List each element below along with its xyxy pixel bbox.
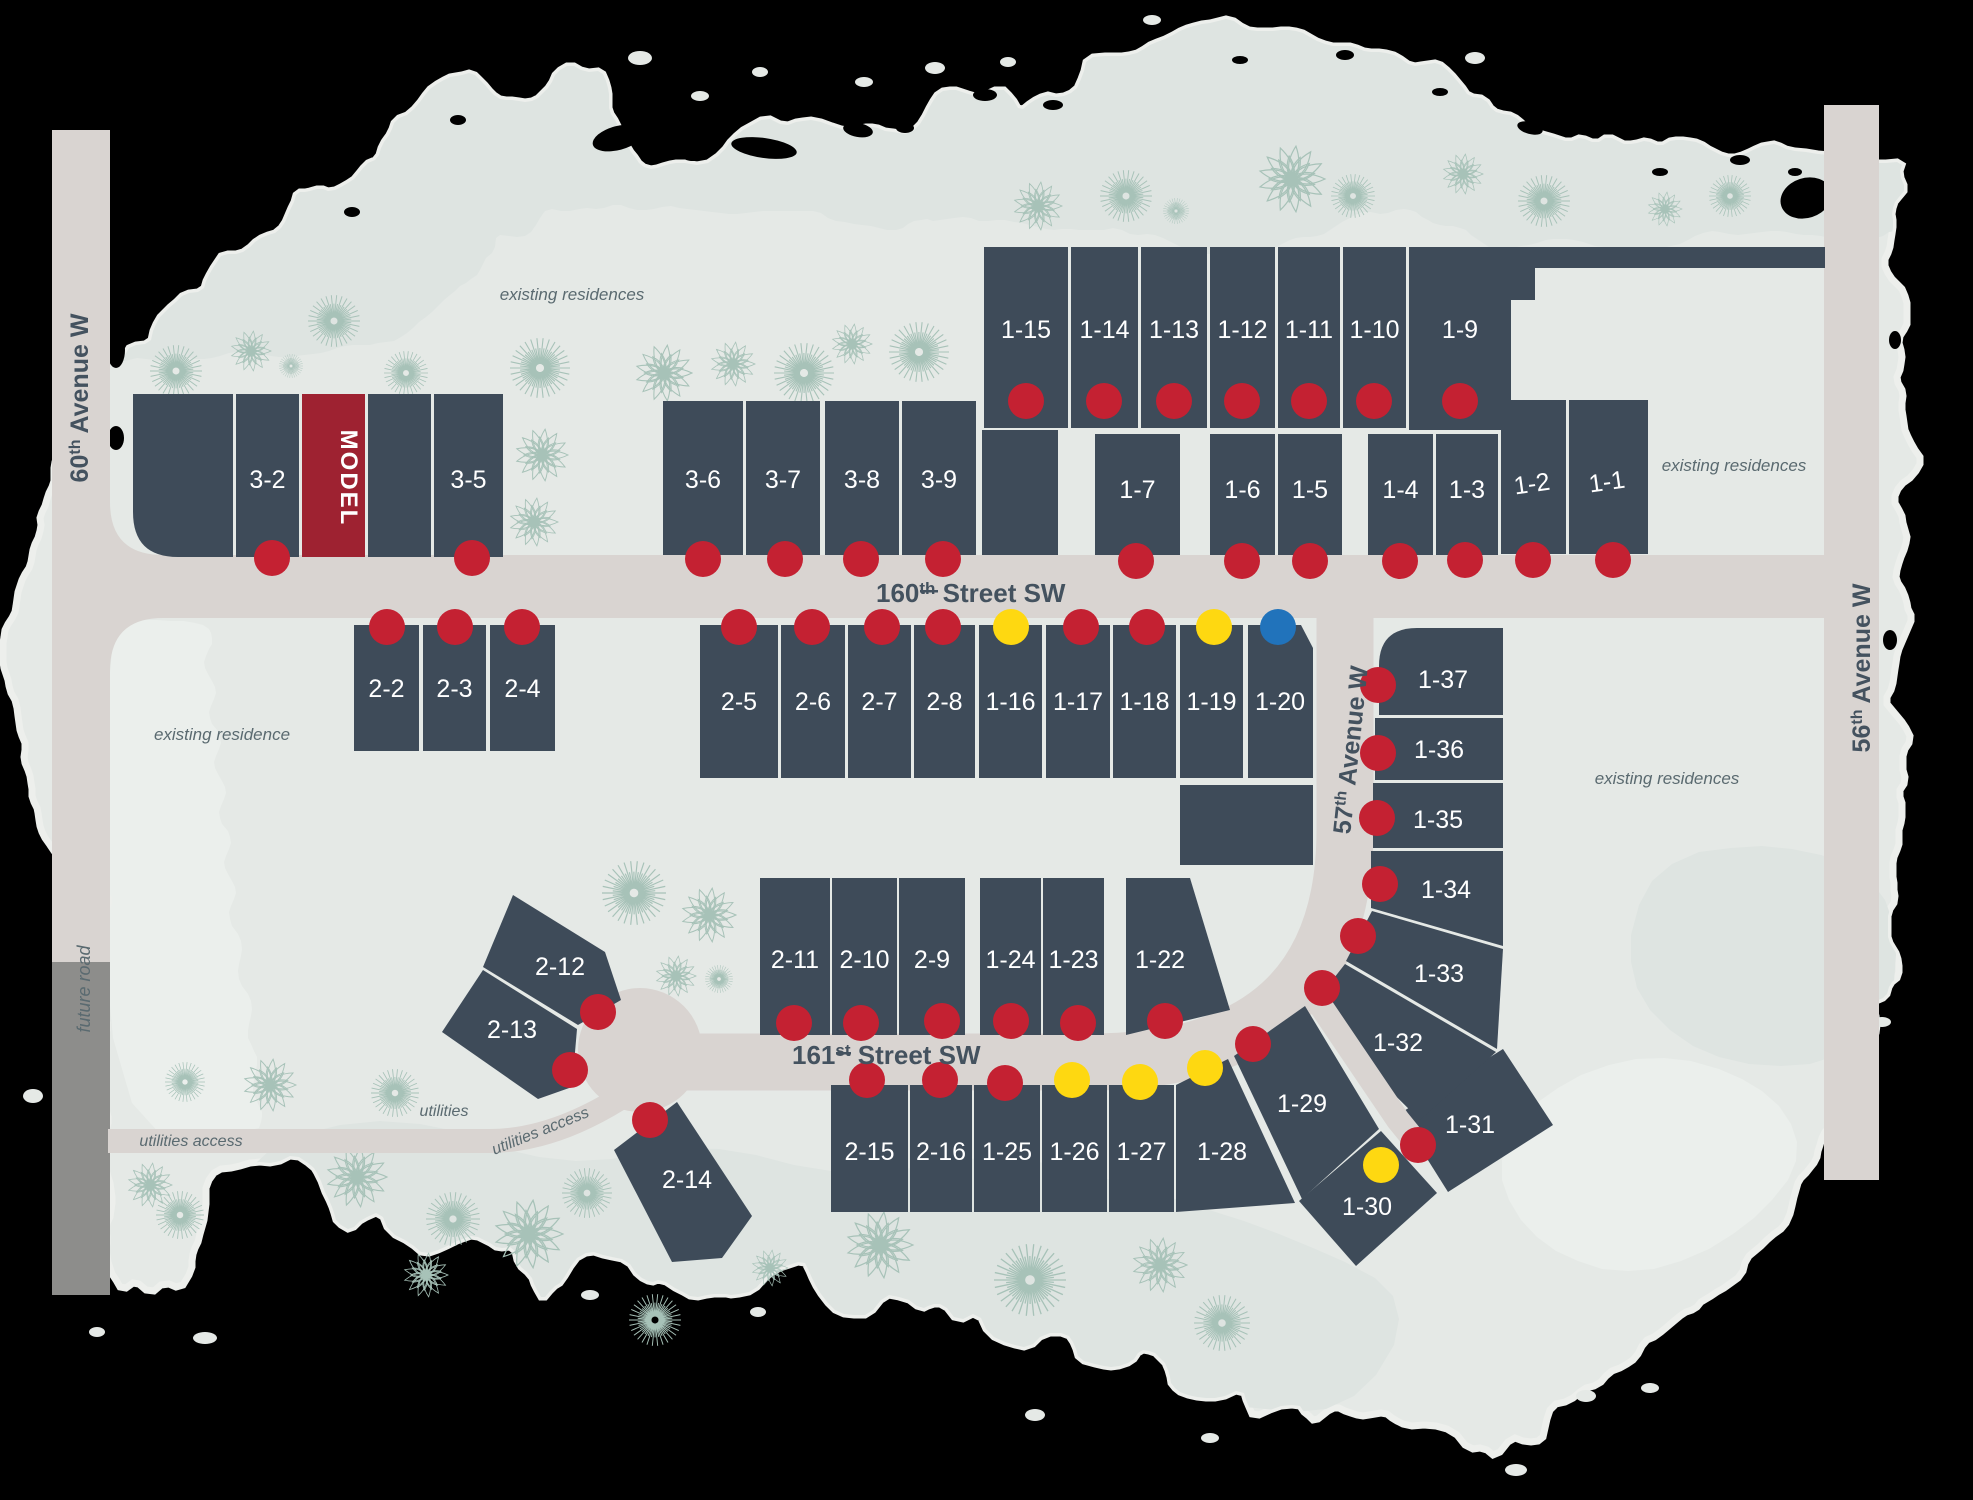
svg-text:2-15: 2-15	[844, 1138, 894, 1166]
svg-text:1-18: 1-18	[1119, 688, 1169, 716]
svg-text:3-6: 3-6	[685, 466, 721, 494]
svg-text:1-5: 1-5	[1292, 476, 1328, 504]
svg-text:1-20: 1-20	[1255, 688, 1305, 716]
svg-text:2-6: 2-6	[795, 688, 831, 716]
svg-text:1-24: 1-24	[985, 946, 1035, 974]
svg-text:1-31: 1-31	[1445, 1111, 1495, 1139]
svg-text:1-3: 1-3	[1449, 476, 1485, 504]
svg-text:1-1: 1-1	[1587, 466, 1627, 499]
svg-text:existing residences: existing residences	[1662, 456, 1807, 475]
svg-text:1-30: 1-30	[1342, 1193, 1392, 1221]
svg-text:1-14: 1-14	[1079, 316, 1129, 344]
svg-text:1-33: 1-33	[1414, 960, 1464, 988]
svg-text:161st Street SW: 161st Street SW	[792, 1040, 981, 1070]
svg-text:3-5: 3-5	[450, 466, 486, 494]
svg-text:1-28: 1-28	[1197, 1138, 1247, 1166]
svg-text:1-6: 1-6	[1224, 476, 1260, 504]
svg-text:56th Avenue W: 56th Avenue W	[1848, 583, 1876, 752]
svg-text:2-16: 2-16	[916, 1138, 966, 1166]
svg-text:2-4: 2-4	[504, 675, 540, 703]
svg-text:1-4: 1-4	[1382, 476, 1418, 504]
svg-text:160th Street SW: 160th Street SW	[876, 578, 1066, 608]
svg-text:2-14: 2-14	[662, 1166, 712, 1194]
svg-text:1-2: 1-2	[1512, 468, 1552, 501]
svg-text:1-34: 1-34	[1421, 876, 1471, 904]
svg-text:utilities: utilities	[420, 1103, 469, 1120]
svg-text:future road: future road	[74, 944, 94, 1032]
svg-text:1-19: 1-19	[1186, 688, 1236, 716]
svg-text:2-2: 2-2	[368, 675, 404, 703]
svg-text:1-13: 1-13	[1149, 316, 1199, 344]
svg-text:1-36: 1-36	[1414, 736, 1464, 764]
svg-text:3-9: 3-9	[921, 466, 957, 494]
svg-text:1-12: 1-12	[1217, 316, 1267, 344]
svg-text:utilities access: utilities access	[139, 1133, 242, 1150]
svg-text:1-32: 1-32	[1373, 1029, 1423, 1057]
svg-text:2-3: 2-3	[436, 675, 472, 703]
svg-text:1-29: 1-29	[1277, 1090, 1327, 1118]
svg-text:1-10: 1-10	[1349, 316, 1399, 344]
svg-text:1-35: 1-35	[1413, 806, 1463, 834]
svg-text:2-11: 2-11	[771, 946, 819, 974]
svg-text:1-11: 1-11	[1285, 316, 1333, 344]
svg-text:existing residence: existing residence	[154, 725, 290, 744]
svg-text:2-12: 2-12	[535, 953, 585, 981]
svg-text:MODEL: MODEL	[335, 430, 362, 527]
svg-text:3-2: 3-2	[249, 466, 285, 494]
svg-text:2-8: 2-8	[926, 688, 962, 716]
svg-text:1-25: 1-25	[982, 1138, 1032, 1166]
svg-text:existing residences: existing residences	[500, 285, 645, 304]
svg-text:3-8: 3-8	[844, 466, 880, 494]
svg-text:1-17: 1-17	[1053, 688, 1103, 716]
svg-text:2-13: 2-13	[487, 1016, 537, 1044]
svg-text:2-9: 2-9	[914, 946, 950, 974]
svg-text:2-7: 2-7	[861, 688, 897, 716]
svg-text:1-23: 1-23	[1048, 946, 1098, 974]
svg-text:1-7: 1-7	[1119, 476, 1155, 504]
svg-text:1-22: 1-22	[1135, 946, 1185, 974]
svg-text:existing residences: existing residences	[1595, 769, 1740, 788]
svg-text:1-37: 1-37	[1418, 666, 1468, 694]
svg-text:1-15: 1-15	[1001, 316, 1051, 344]
svg-text:2-10: 2-10	[839, 946, 889, 974]
svg-text:1-16: 1-16	[985, 688, 1035, 716]
svg-text:2-5: 2-5	[721, 688, 757, 716]
svg-text:3-7: 3-7	[765, 466, 801, 494]
svg-text:1-26: 1-26	[1049, 1138, 1099, 1166]
svg-text:1-9: 1-9	[1442, 316, 1478, 344]
svg-text:60th Avenue W: 60th Avenue W	[66, 313, 94, 482]
svg-text:1-27: 1-27	[1116, 1138, 1166, 1166]
